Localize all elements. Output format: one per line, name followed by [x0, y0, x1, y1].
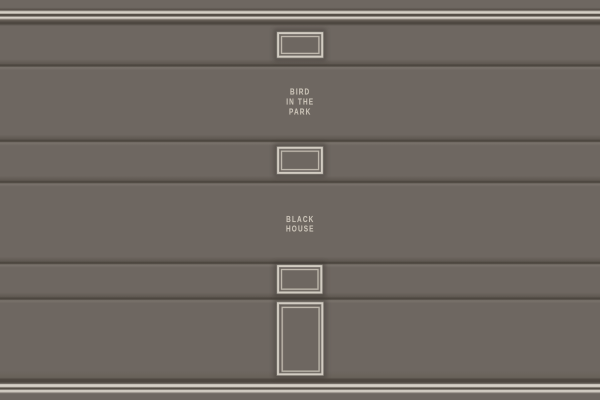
svg-text:PARK: PARK — [289, 107, 311, 117]
svg-text:IN THE: IN THE — [286, 97, 314, 107]
svg-text:HOUSE: HOUSE — [286, 224, 315, 234]
svg-text:BIRD: BIRD — [290, 87, 310, 97]
svg-text:BLACK: BLACK — [286, 214, 314, 224]
